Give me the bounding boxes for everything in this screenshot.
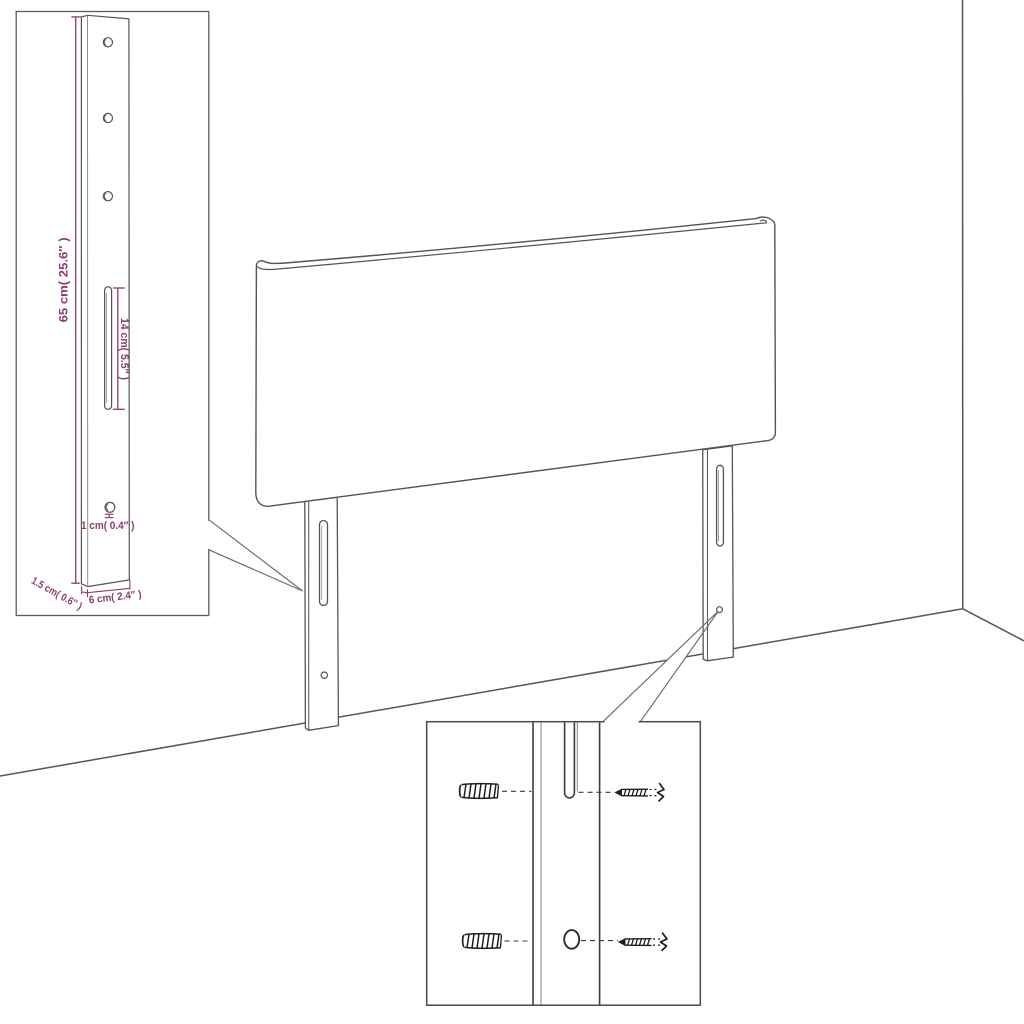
svg-text:14 cm( 5.5″ ): 14 cm( 5.5″ ) (118, 318, 130, 380)
svg-text:65 cm( 25.6″ ): 65 cm( 25.6″ ) (59, 237, 71, 322)
svg-text:1 cm( 0.4″ ): 1 cm( 0.4″ ) (81, 520, 135, 532)
